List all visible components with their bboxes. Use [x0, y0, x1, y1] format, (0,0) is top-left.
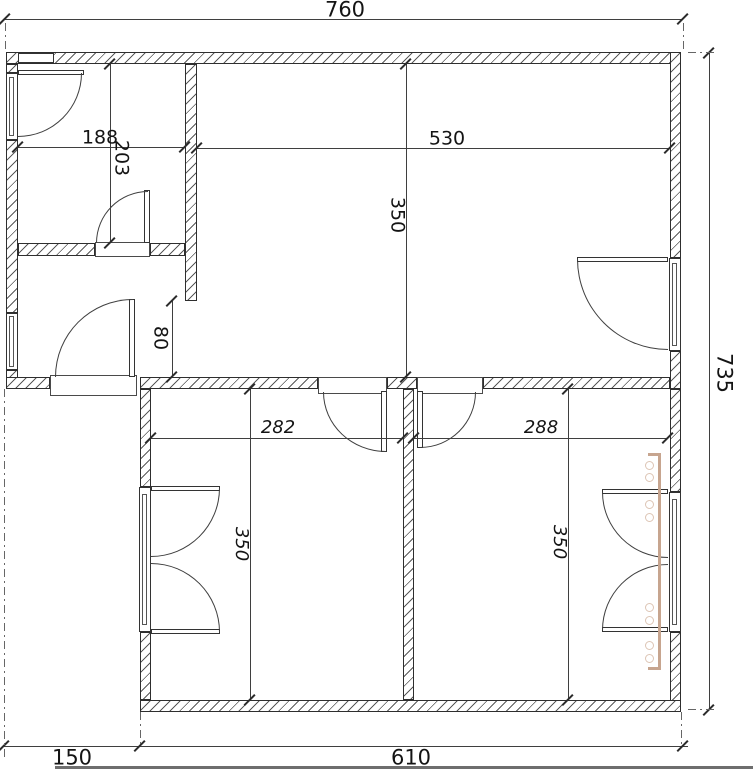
wall-left-middle: [6, 140, 18, 313]
radiator-line: [658, 453, 661, 670]
dim-label-80: 80: [151, 326, 170, 350]
dim-label-288: 288: [524, 419, 558, 437]
window-bedroom-left-inner: [142, 494, 147, 626]
dim-label-350-living: 350: [388, 197, 407, 233]
dim-label-350-bl: 350: [232, 527, 250, 561]
wall-right-lower-a: [670, 389, 681, 492]
dim-line-80: [172, 301, 173, 377]
radiator-circle: [645, 513, 654, 522]
radiator-circle: [645, 473, 654, 482]
radiator-cap-top: [648, 453, 661, 456]
dim-ext-735-top: [688, 52, 718, 53]
wall-top: [6, 52, 681, 64]
door-arc-room2: [96, 191, 148, 243]
door-frame-top-left: [6, 73, 18, 140]
dim-ext-735-bottom: [688, 709, 718, 710]
wall-room2-band-a: [18, 243, 95, 256]
window-arc-bl-bottom: [151, 563, 220, 632]
window-arc-living: [577, 259, 668, 350]
wall-middle-band-c: [483, 377, 670, 389]
wall-bottom: [140, 700, 681, 712]
dim-ext-bottom-right: [681, 712, 682, 745]
wall-middle-band-a: [6, 377, 50, 389]
floor-plan-canvas: 760 735 188 203 530 350 80 282 288 350 3…: [0, 0, 753, 769]
threshold-entry-door: [50, 375, 137, 396]
dim-ext-760-left: [5, 23, 6, 52]
dim-ext-760-right: [683, 23, 684, 52]
wall-room2-band-b: [150, 243, 185, 256]
dim-line-288: [414, 438, 668, 439]
radiator-circle: [645, 500, 654, 509]
window-hall-left: [6, 313, 18, 370]
window-bedroom-right-inner: [672, 499, 677, 626]
dim-label-282: 282: [261, 419, 295, 437]
dim-label-610: 610: [391, 748, 431, 769]
radiator-circle: [645, 603, 654, 612]
window-hall-left-inner: [9, 316, 14, 367]
dim-label-530: 530: [429, 130, 465, 149]
radiator-circle: [645, 461, 654, 470]
door-frame-top-left-inner: [9, 77, 14, 137]
dim-line-bottom: [4, 746, 688, 747]
dim-label-735: 735: [714, 353, 735, 393]
window-arc-bl-top: [151, 488, 220, 557]
dim-ext-bottom-left: [140, 712, 141, 745]
dim-label-203: 203: [112, 140, 131, 176]
door-arc-bedroom-left: [323, 392, 386, 452]
dim-label-350-br: 350: [550, 525, 568, 559]
door-arc-entry: [55, 299, 133, 377]
dim-label-150: 150: [52, 748, 92, 769]
radiator-circle: [645, 616, 654, 625]
radiator-circle: [645, 654, 654, 663]
door-arc-top-left: [18, 73, 82, 137]
wall-left-lower-b: [140, 632, 151, 700]
window-bedroom-left: [139, 487, 151, 632]
window-living-right: [669, 258, 681, 351]
centerline-left: [4, 389, 5, 760]
window-living-right-inner: [672, 263, 677, 347]
dim-line-282: [151, 438, 403, 439]
wall-right-upper: [670, 52, 681, 258]
dim-line-735: [709, 53, 710, 710]
window-bedroom-right: [669, 492, 681, 632]
radiator-circle: [645, 641, 654, 650]
wall-interior-left-column: [185, 64, 197, 301]
radiator-cap-bottom: [648, 667, 661, 670]
dim-label-760: 760: [325, 0, 365, 21]
wall-right-mid: [670, 351, 681, 389]
threshold-room2-door: [95, 242, 150, 257]
wall-left-upper-stub: [6, 64, 18, 73]
door-arc-bedroom-right: [420, 392, 476, 448]
top-wall-opening: [18, 53, 54, 63]
